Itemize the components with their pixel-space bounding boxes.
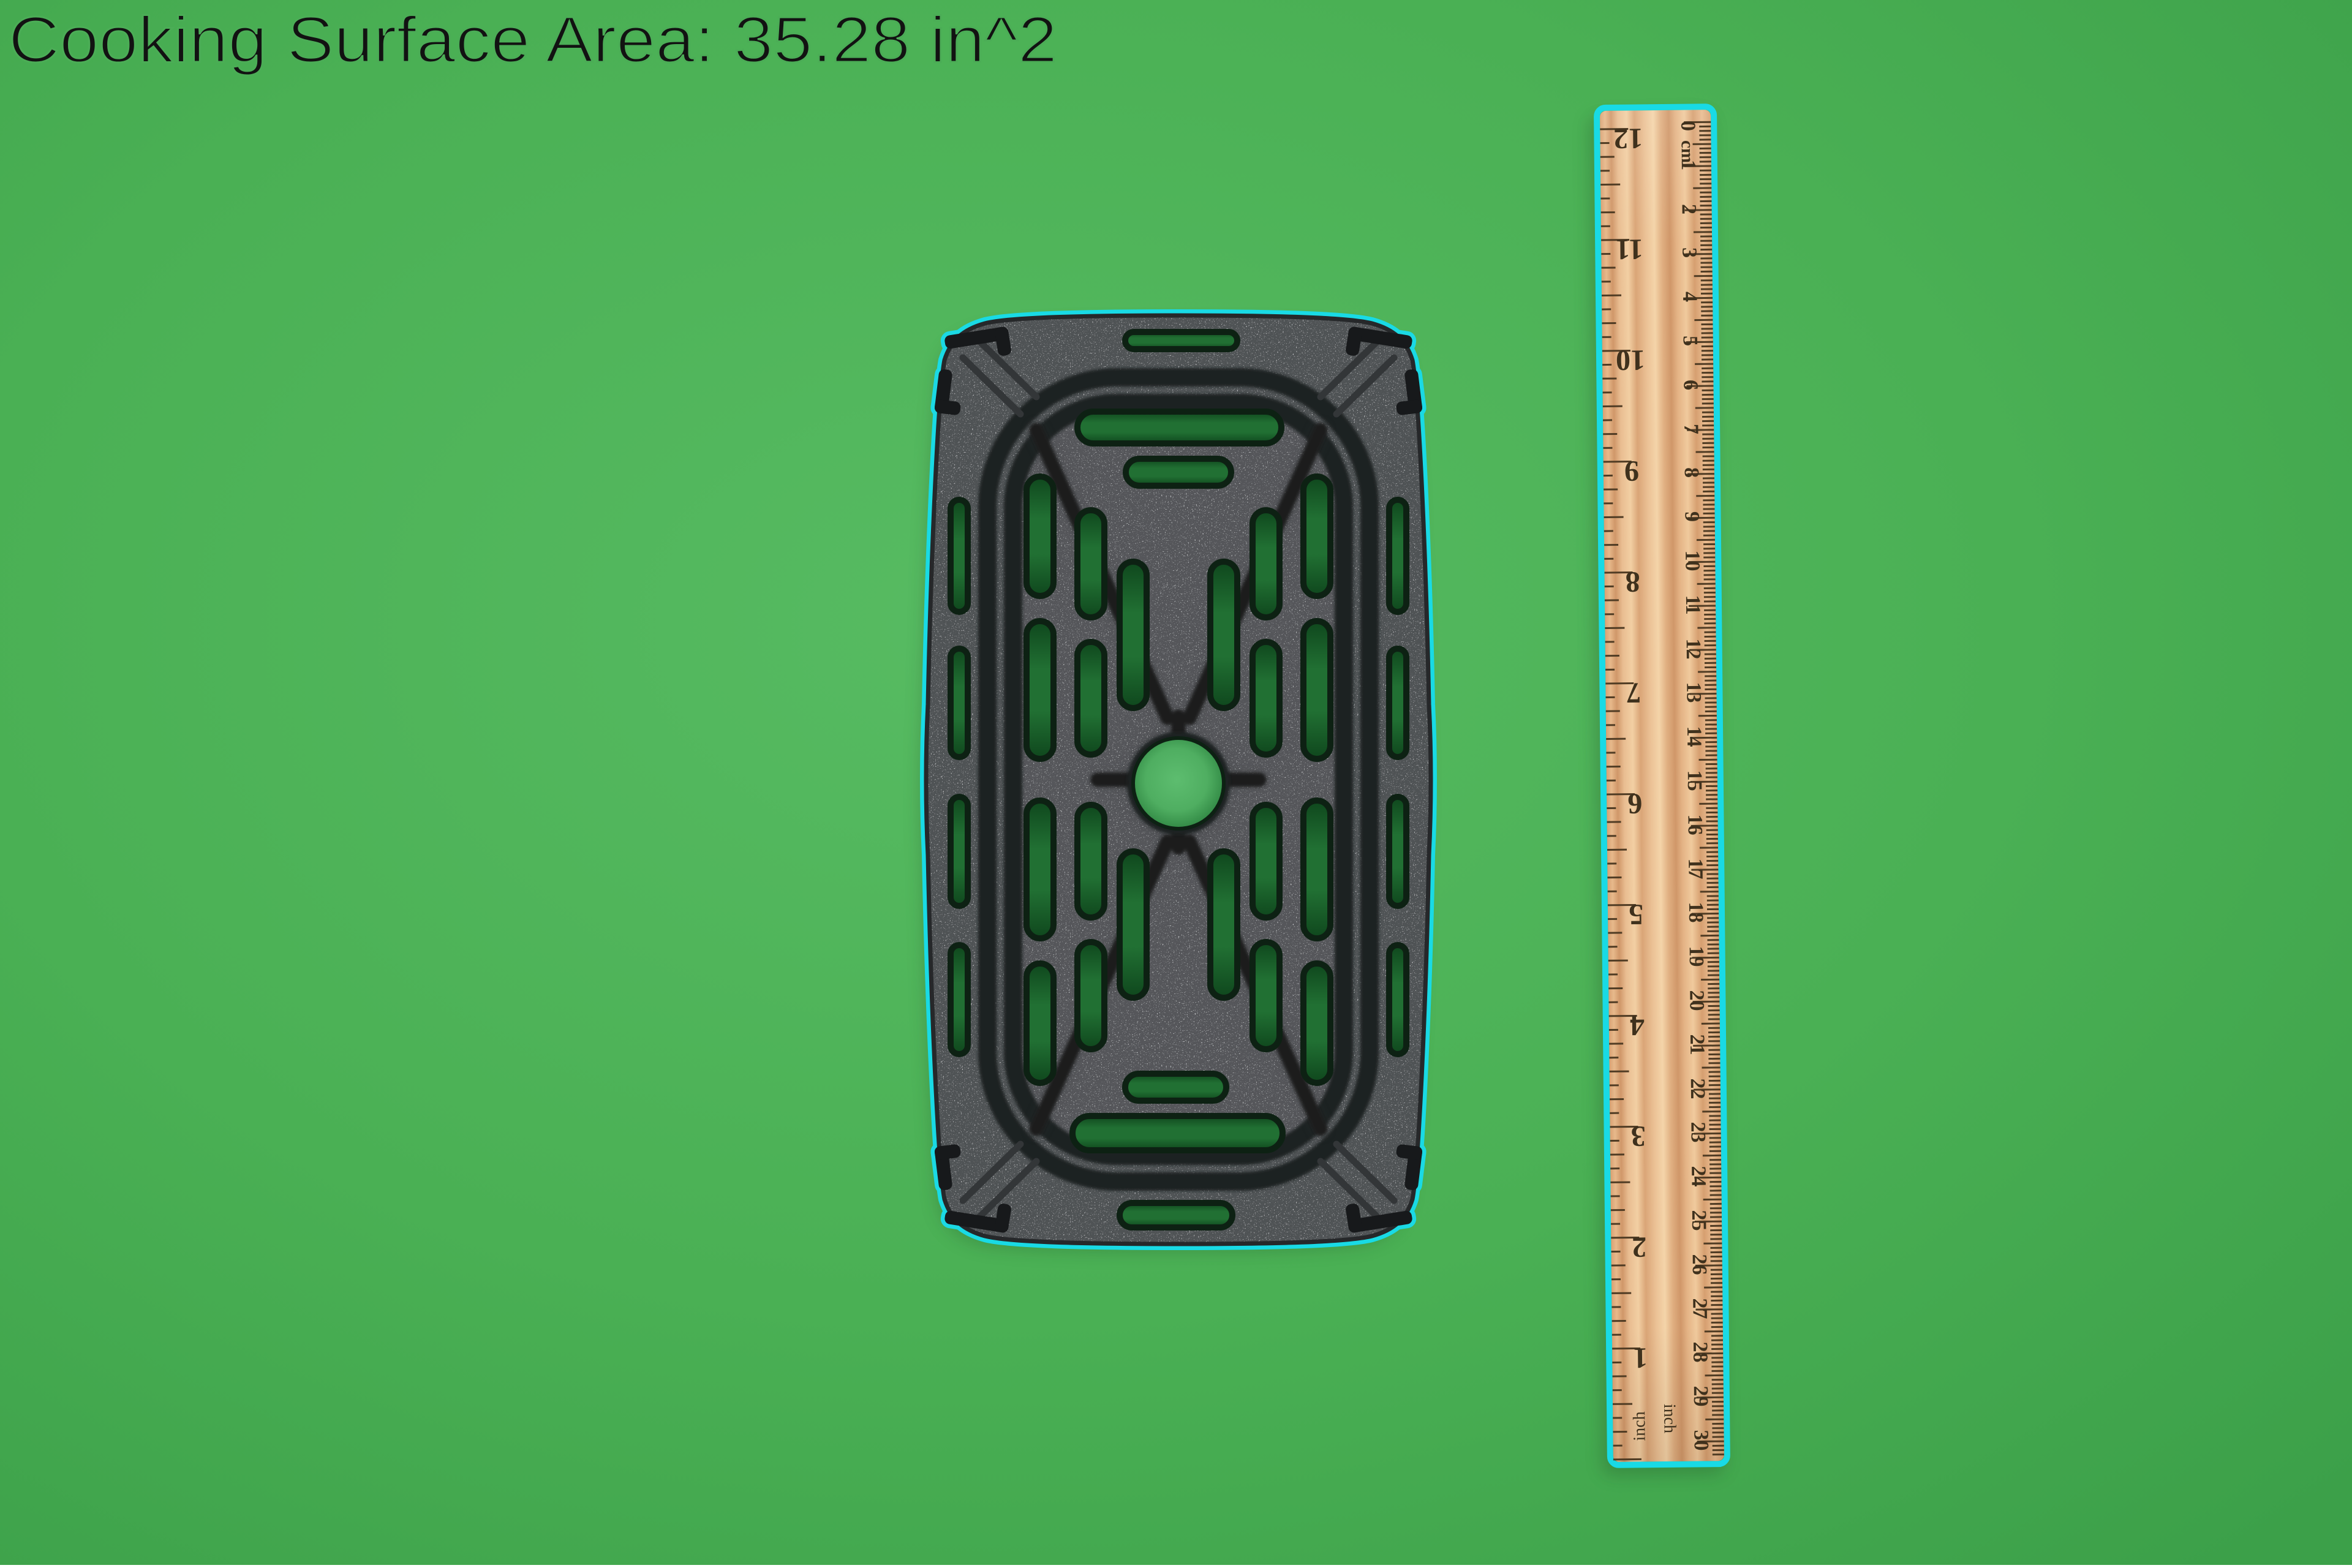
svg-text:11: 11 [1681, 595, 1704, 614]
svg-text:4: 4 [1678, 292, 1701, 302]
svg-text:15: 15 [1683, 770, 1706, 791]
svg-text:3: 3 [1630, 1120, 1646, 1152]
svg-text:12: 12 [1613, 122, 1643, 154]
svg-text:13: 13 [1682, 682, 1705, 703]
svg-text:2: 2 [1678, 204, 1700, 214]
svg-text:6: 6 [1679, 380, 1702, 390]
svg-text:8: 8 [1680, 467, 1703, 478]
svg-text:4: 4 [1630, 1009, 1645, 1041]
svg-text:25: 25 [1687, 1210, 1710, 1231]
svg-text:5: 5 [1679, 336, 1702, 346]
svg-text:24: 24 [1687, 1166, 1709, 1186]
svg-text:19: 19 [1685, 946, 1708, 967]
svg-text:3: 3 [1678, 247, 1700, 258]
svg-text:11: 11 [1615, 233, 1643, 265]
svg-text:17: 17 [1684, 858, 1706, 879]
svg-text:18: 18 [1684, 902, 1707, 922]
svg-text:16: 16 [1683, 814, 1706, 835]
svg-text:14: 14 [1683, 726, 1705, 747]
svg-text:22: 22 [1686, 1078, 1709, 1099]
svg-text:23: 23 [1686, 1121, 1709, 1142]
svg-text:30: 30 [1689, 1430, 1712, 1450]
svg-text:9: 9 [1624, 454, 1640, 487]
svg-text:20: 20 [1685, 990, 1708, 1011]
svg-text:Cooking Surface Area: 35.28 in: Cooking Surface Area: 35.28 in^2 [9, 4, 1057, 76]
svg-text:0: 0 [1676, 121, 1699, 131]
svg-text:5: 5 [1629, 898, 1644, 930]
svg-text:2: 2 [1632, 1231, 1647, 1263]
svg-text:9: 9 [1681, 511, 1703, 522]
svg-text:26: 26 [1688, 1254, 1711, 1275]
svg-text:12: 12 [1682, 638, 1705, 659]
svg-text:10: 10 [1616, 344, 1646, 376]
svg-text:28: 28 [1689, 1341, 1711, 1362]
svg-text:27: 27 [1688, 1298, 1711, 1319]
svg-text:29: 29 [1689, 1385, 1712, 1406]
svg-text:7: 7 [1626, 676, 1642, 709]
svg-text:21: 21 [1686, 1034, 1708, 1055]
svg-text:10: 10 [1681, 550, 1703, 571]
svg-text:1: 1 [1677, 160, 1700, 170]
svg-text:8: 8 [1625, 565, 1640, 598]
svg-text:1: 1 [1633, 1341, 1648, 1374]
svg-text:inch: inch [1660, 1404, 1679, 1434]
svg-text:7: 7 [1679, 424, 1702, 434]
svg-text:6: 6 [1627, 787, 1643, 820]
svg-text:inch: inch [1630, 1411, 1649, 1441]
